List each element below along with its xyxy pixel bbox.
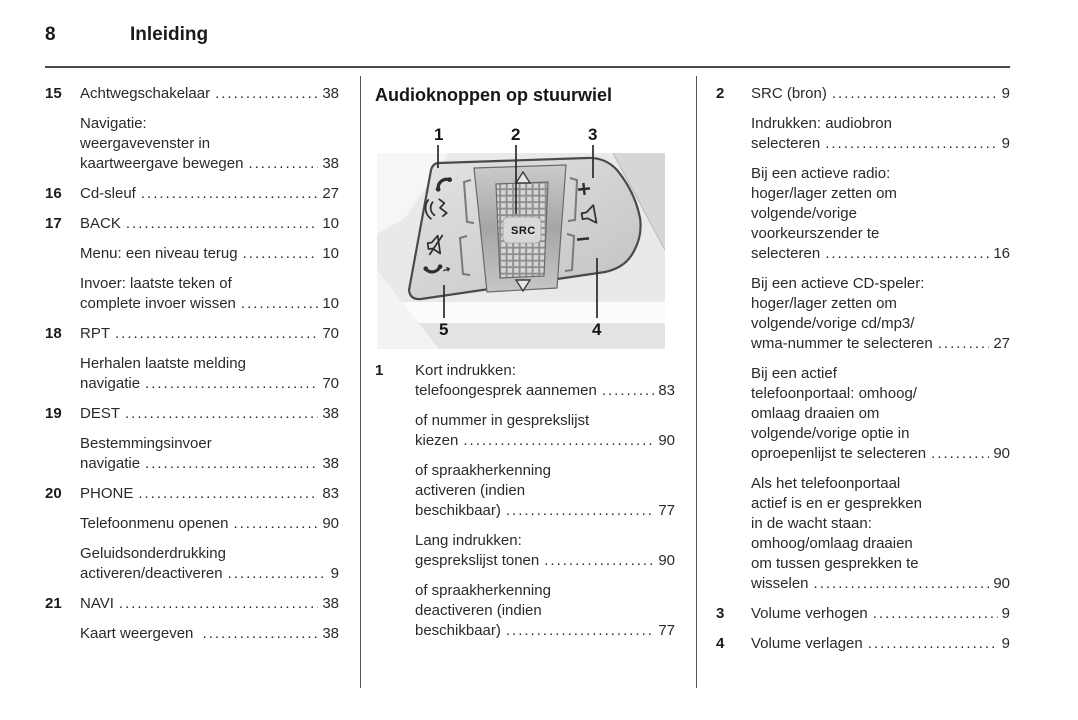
- toc-entry-lastline: SRC (bron)9: [751, 84, 1010, 104]
- dot-leader: [145, 374, 318, 394]
- toc-entry: Indrukken: audiobronselecteren9: [716, 114, 1010, 154]
- toc-entry-lastline: selecteren9: [751, 134, 1010, 154]
- toc-entry-line: PHONE: [80, 484, 133, 504]
- dot-leader: [506, 621, 654, 641]
- toc-entry-lastline: Cd-sleuf27: [80, 184, 339, 204]
- toc-entry-page: 10: [322, 214, 339, 234]
- toc-entry-text: DEST38: [80, 404, 339, 424]
- toc-entry-line: om tussen gesprekken te: [751, 554, 1010, 574]
- toc-entry-line: wma-nummer te selecteren: [751, 334, 933, 354]
- toc-entry-lastline: activeren/deactiveren9: [80, 564, 339, 584]
- toc-entry-line: of nummer in gesprekslijst: [415, 411, 675, 431]
- toc-entry-text: Achtwegschakelaar38: [80, 84, 339, 104]
- dot-leader: [141, 184, 318, 204]
- toc-entry-page: 10: [322, 294, 339, 314]
- toc-entry-text: Volume verlagen9: [751, 634, 1010, 654]
- dot-leader: [544, 551, 654, 571]
- dot-leader: [241, 294, 318, 314]
- toc-entry-lastline: Menu: een niveau terug10: [80, 244, 339, 264]
- toc-entry: Menu: een niveau terug10: [45, 244, 339, 264]
- volume-minus-icon: [577, 238, 589, 239]
- toc-entry-line: weergavevenster in: [80, 134, 339, 154]
- toc-entry-line: Kaart weergeven: [80, 624, 198, 644]
- toc-entry-line: deactiveren (indien: [415, 601, 675, 621]
- toc-entry-line: Invoer: laatste teken of: [80, 274, 339, 294]
- section-title: Audioknoppen op stuurwiel: [375, 84, 675, 106]
- toc-entry-lastline: RPT70: [80, 324, 339, 344]
- toc-entry: 19DEST38: [45, 404, 339, 424]
- toc-entry-page: 27: [322, 184, 339, 204]
- dot-leader: [228, 564, 327, 584]
- toc-entry-number: [45, 114, 80, 174]
- toc-entry-page: 38: [322, 84, 339, 104]
- toc-entry-number: [716, 164, 751, 264]
- toc-entry-number: 19: [45, 404, 80, 424]
- toc-entry-number: [45, 514, 80, 534]
- toc-entries-left: 15Achtwegschakelaar38Navigatie:weergavev…: [45, 84, 339, 644]
- toc-entry-text: Indrukken: audiobronselecteren9: [751, 114, 1010, 154]
- toc-entry-number: [45, 544, 80, 584]
- toc-entry-number: [375, 581, 415, 641]
- toc-entry-line: Cd-sleuf: [80, 184, 136, 204]
- toc-entry-lastline: PHONE83: [80, 484, 339, 504]
- toc-entry-number: [45, 244, 80, 264]
- toc-entry: Herhalen laatste meldingnavigatie70: [45, 354, 339, 394]
- toc-entry-line: RPT: [80, 324, 110, 344]
- src-thumbwheel: SRC: [496, 182, 548, 278]
- toc-entry-page: 70: [322, 324, 339, 344]
- toc-entry-line: volgende/vorige: [751, 204, 1010, 224]
- dot-leader: [215, 84, 318, 104]
- toc-entry-lastline: wma-nummer te selecteren27: [751, 334, 1010, 354]
- toc-entry-lastline: gesprekslijst tonen90: [415, 551, 675, 571]
- column-divider-right: [696, 76, 697, 688]
- callout-number-3: 3: [588, 125, 597, 144]
- toc-entry-text: Bij een actieve radio:hoger/lager zetten…: [751, 164, 1010, 264]
- toc-entry-lastline: kiezen90: [415, 431, 675, 451]
- toc-entry: 4Volume verlagen9: [716, 634, 1010, 654]
- toc-entry-line: Bestemmingsinvoer: [80, 434, 339, 454]
- toc-entry-text: Navigatie:weergavevenster inkaartweergav…: [80, 114, 339, 174]
- toc-entry-number: [45, 434, 80, 474]
- toc-entry-page: 9: [1002, 634, 1010, 654]
- toc-entry-lastline: telefoongesprek aannemen83: [415, 381, 675, 401]
- toc-entry: 18RPT70: [45, 324, 339, 344]
- toc-entry-page: 9: [1002, 604, 1010, 624]
- toc-entry-text: of nummer in gesprekslijstkiezen90: [415, 411, 675, 451]
- callout-number-4: 4: [592, 320, 602, 339]
- toc-entry-line: Indrukken: audiobron: [751, 114, 1010, 134]
- toc-entry-text: Bij een actieftelefoonportaal: omhoog/om…: [751, 364, 1010, 464]
- toc-entry-line: in de wacht staan:: [751, 514, 1010, 534]
- toc-entry: 21NAVI38: [45, 594, 339, 614]
- toc-entry-text: of spraakherkenningactiveren (indienbesc…: [415, 461, 675, 521]
- src-wheel-label: SRC: [511, 225, 536, 237]
- toc-entry-line: kiezen: [415, 431, 458, 451]
- toc-entry-number: 15: [45, 84, 80, 104]
- toc-entry-text: Als het telefoonportaalactief is en er g…: [751, 474, 1010, 594]
- toc-entry-line: NAVI: [80, 594, 114, 614]
- toc-entry: 16Cd-sleuf27: [45, 184, 339, 204]
- callout-number-1: 1: [434, 125, 443, 144]
- dot-leader: [119, 594, 318, 614]
- toc-entry-line: gesprekslijst tonen: [415, 551, 539, 571]
- toc-entry-number: 3: [716, 604, 751, 624]
- toc-column-middle: Audioknoppen op stuurwiel: [375, 84, 675, 651]
- toc-entry-line: selecteren: [751, 244, 820, 264]
- toc-entry-page: 16: [993, 244, 1010, 264]
- dot-leader: [243, 244, 319, 264]
- toc-entry-line: Telefoonmenu openen: [80, 514, 228, 534]
- toc-entry-text: Invoer: laatste teken ofcomplete invoer …: [80, 274, 339, 314]
- toc-entry-line: of spraakherkenning: [415, 581, 675, 601]
- toc-entry-number: [716, 274, 751, 354]
- toc-entry-number: 1: [375, 361, 415, 401]
- toc-entry: 2SRC (bron)9: [716, 84, 1010, 104]
- toc-entry-text: Herhalen laatste meldingnavigatie70: [80, 354, 339, 394]
- toc-entry-line: Volume verhogen: [751, 604, 868, 624]
- toc-entry-lastline: Kaart weergeven 38: [80, 624, 339, 644]
- toc-entry-line: volgende/vorige optie in: [751, 424, 1010, 444]
- toc-entry: 15Achtwegschakelaar38: [45, 84, 339, 104]
- toc-entry: Telefoonmenu openen90: [45, 514, 339, 534]
- toc-entry: of spraakherkenningactiveren (indienbesc…: [375, 461, 675, 521]
- dot-leader: [602, 381, 655, 401]
- toc-entry-line: actief is en er gesprekken: [751, 494, 1010, 514]
- toc-entry-line: activeren (indien: [415, 481, 675, 501]
- dot-leader: [115, 324, 318, 344]
- toc-entry-text: NAVI38: [80, 594, 339, 614]
- dot-leader: [814, 574, 990, 594]
- toc-entry: 3Volume verhogen9: [716, 604, 1010, 624]
- toc-entry-line: SRC (bron): [751, 84, 827, 104]
- toc-entry-page: 70: [322, 374, 339, 394]
- toc-entry-page: 10: [322, 244, 339, 264]
- toc-entry-text: BACK10: [80, 214, 339, 234]
- toc-entry-line: Bij een actieve radio:: [751, 164, 1010, 184]
- toc-entry-page: 27: [993, 334, 1010, 354]
- dot-leader: [125, 404, 318, 424]
- toc-entry-page: 83: [322, 484, 339, 504]
- toc-entry-line: Lang indrukken:: [415, 531, 675, 551]
- toc-entry-page: 90: [658, 431, 675, 451]
- dot-leader: [825, 244, 989, 264]
- toc-entry-lastline: wisselen90: [751, 574, 1010, 594]
- toc-entry-line: wisselen: [751, 574, 809, 594]
- toc-entry-number: [375, 531, 415, 571]
- toc-entry-line: telefoongesprek aannemen: [415, 381, 597, 401]
- toc-entry: of spraakherkenningdeactiveren (indienbe…: [375, 581, 675, 641]
- dot-leader: [931, 444, 989, 464]
- toc-entry-page: 90: [322, 514, 339, 534]
- toc-entry: Geluidsonderdrukkingactiveren/deactivere…: [45, 544, 339, 584]
- page-number: 8: [45, 24, 56, 46]
- toc-entry: Bij een actieve radio:hoger/lager zetten…: [716, 164, 1010, 264]
- toc-entry-page: 9: [331, 564, 339, 584]
- toc-entry-lastline: navigatie38: [80, 454, 339, 474]
- toc-entry: Als het telefoonportaalactief is en er g…: [716, 474, 1010, 594]
- toc-entry-lastline: Volume verlagen9: [751, 634, 1010, 654]
- toc-entries-right: 2SRC (bron)9Indrukken: audiobronselecter…: [716, 84, 1010, 654]
- toc-entry-line: Bij een actieve CD-speler:: [751, 274, 1010, 294]
- header-rule: [45, 66, 1010, 68]
- dot-leader: [126, 214, 318, 234]
- toc-entry-line: Als het telefoonportaal: [751, 474, 1010, 494]
- toc-entry: Navigatie:weergavevenster inkaartweergav…: [45, 114, 339, 174]
- toc-entry-number: 21: [45, 594, 80, 614]
- toc-entry-number: [45, 274, 80, 314]
- toc-entry-number: [716, 114, 751, 154]
- toc-entry-line: activeren/deactiveren: [80, 564, 223, 584]
- manual-page: 8 Inleiding 15Achtwegschakelaar38Navigat…: [0, 0, 1078, 720]
- toc-entry-page: 90: [993, 574, 1010, 594]
- dot-leader: [873, 604, 998, 624]
- toc-entry-line: Kort indrukken:: [415, 361, 675, 381]
- toc-entry-line: omhoog/omlaag draaien: [751, 534, 1010, 554]
- toc-entry: Bestemmingsinvoernavigatie38: [45, 434, 339, 474]
- toc-entry-text: Lang indrukken:gesprekslijst tonen90: [415, 531, 675, 571]
- callout-number-5: 5: [439, 320, 448, 339]
- toc-entry: Kaart weergeven 38: [45, 624, 339, 644]
- toc-entry-lastline: Achtwegschakelaar38: [80, 84, 339, 104]
- toc-entries-middle: 1Kort indrukken:telefoongesprek aannemen…: [375, 361, 675, 641]
- dot-leader: [248, 154, 318, 174]
- toc-column-right: 2SRC (bron)9Indrukken: audiobronselecter…: [716, 84, 1010, 664]
- toc-entry-text: Bestemmingsinvoernavigatie38: [80, 434, 339, 474]
- toc-entry-line: Navigatie:: [80, 114, 339, 134]
- toc-entry: Bij een actieftelefoonportaal: omhoog/om…: [716, 364, 1010, 464]
- toc-entry-text: Cd-sleuf27: [80, 184, 339, 204]
- toc-entry-line: kaartweergave bewegen: [80, 154, 243, 174]
- column-divider-left: [360, 76, 361, 688]
- toc-entry-line: omlaag draaien om: [751, 404, 1010, 424]
- toc-entry-page: 77: [658, 621, 675, 641]
- toc-entry-number: 18: [45, 324, 80, 344]
- toc-entry-line: beschikbaar): [415, 501, 501, 521]
- toc-entry-page: 77: [658, 501, 675, 521]
- toc-entry-text: of spraakherkenningdeactiveren (indienbe…: [415, 581, 675, 641]
- toc-entry-line: Bij een actief: [751, 364, 1010, 384]
- toc-entry-lastline: Volume verhogen9: [751, 604, 1010, 624]
- toc-entry-page: 90: [993, 444, 1010, 464]
- toc-entry-page: 83: [658, 381, 675, 401]
- toc-entry-lastline: complete invoer wissen10: [80, 294, 339, 314]
- steering-wheel-audio-controls-figure: SRC: [377, 118, 665, 349]
- toc-entry-text: Bij een actieve CD-speler:hoger/lager ze…: [751, 274, 1010, 354]
- toc-entry-lastline: beschikbaar)77: [415, 501, 675, 521]
- toc-entry-number: [45, 354, 80, 394]
- toc-entry-text: Kort indrukken:telefoongesprek aannemen8…: [415, 361, 675, 401]
- toc-entry: 17BACK10: [45, 214, 339, 234]
- dot-leader: [463, 431, 654, 451]
- toc-entry-line: of spraakherkenning: [415, 461, 675, 481]
- toc-entry-number: 17: [45, 214, 80, 234]
- toc-entry-text: PHONE83: [80, 484, 339, 504]
- toc-entry-number: [375, 461, 415, 521]
- toc-entry-page: 9: [1002, 84, 1010, 104]
- toc-entry-text: Geluidsonderdrukkingactiveren/deactivere…: [80, 544, 339, 584]
- toc-entry-line: DEST: [80, 404, 120, 424]
- page-title: Inleiding: [130, 24, 208, 46]
- toc-entry-lastline: DEST38: [80, 404, 339, 424]
- toc-entry-line: Menu: een niveau terug: [80, 244, 238, 264]
- toc-entry: Bij een actieve CD-speler:hoger/lager ze…: [716, 274, 1010, 354]
- toc-entry-text: Volume verhogen9: [751, 604, 1010, 624]
- toc-entry: Lang indrukken:gesprekslijst tonen90: [375, 531, 675, 571]
- toc-entry-line: Herhalen laatste melding: [80, 354, 339, 374]
- toc-entry-text: RPT70: [80, 324, 339, 344]
- toc-entry-lastline: navigatie70: [80, 374, 339, 394]
- dot-leader: [825, 134, 997, 154]
- toc-entry-text: Menu: een niveau terug10: [80, 244, 339, 264]
- callout-number-2: 2: [511, 125, 520, 144]
- dot-leader: [938, 334, 990, 354]
- toc-entry-line: hoger/lager zetten om: [751, 184, 1010, 204]
- toc-entry-page: 38: [322, 154, 339, 174]
- toc-entry-line: navigatie: [80, 374, 140, 394]
- toc-entry-page: 9: [1002, 134, 1010, 154]
- toc-entry-number: 2: [716, 84, 751, 104]
- toc-entry-lastline: beschikbaar)77: [415, 621, 675, 641]
- dot-leader: [145, 454, 318, 474]
- toc-entry-line: volgende/vorige cd/mp3/: [751, 314, 1010, 334]
- toc-entry-lastline: Telefoonmenu openen90: [80, 514, 339, 534]
- dot-leader: [138, 484, 318, 504]
- toc-entry-line: Geluidsonderdrukking: [80, 544, 339, 564]
- dot-leader: [868, 634, 998, 654]
- dot-leader: [506, 501, 654, 521]
- toc-entry-line: oproepenlijst te selecteren: [751, 444, 926, 464]
- toc-entry-line: navigatie: [80, 454, 140, 474]
- toc-entry-lastline: kaartweergave bewegen38: [80, 154, 339, 174]
- toc-entry-line: beschikbaar): [415, 621, 501, 641]
- toc-entry-number: [716, 364, 751, 464]
- toc-column-left: 15Achtwegschakelaar38Navigatie:weergavev…: [45, 84, 339, 654]
- toc-entry-text: Kaart weergeven 38: [80, 624, 339, 644]
- toc-entry-number: [375, 411, 415, 451]
- toc-entry-line: Achtwegschakelaar: [80, 84, 210, 104]
- toc-entry-lastline: oproepenlijst te selecteren90: [751, 444, 1010, 464]
- toc-entry-line: BACK: [80, 214, 121, 234]
- toc-entry-line: complete invoer wissen: [80, 294, 236, 314]
- toc-entry-lastline: BACK10: [80, 214, 339, 234]
- toc-entry-line: selecteren: [751, 134, 820, 154]
- toc-entry-page: 90: [658, 551, 675, 571]
- figure-svg: SRC: [377, 118, 665, 349]
- toc-entry-number: [716, 474, 751, 594]
- toc-entry-line: voorkeurszender te: [751, 224, 1010, 244]
- toc-entry-text: SRC (bron)9: [751, 84, 1010, 104]
- toc-entry-page: 38: [322, 624, 339, 644]
- toc-entry-page: 38: [322, 404, 339, 424]
- toc-entry-text: Telefoonmenu openen90: [80, 514, 339, 534]
- toc-entry: 20PHONE83: [45, 484, 339, 504]
- toc-entry-number: 16: [45, 184, 80, 204]
- toc-entry-lastline: NAVI38: [80, 594, 339, 614]
- dot-leader: [832, 84, 998, 104]
- toc-entry-number: 4: [716, 634, 751, 654]
- toc-entry-lastline: selecteren16: [751, 244, 1010, 264]
- toc-entry-line: Volume verlagen: [751, 634, 863, 654]
- toc-entry-number: [45, 624, 80, 644]
- toc-entry-page: 38: [322, 594, 339, 614]
- toc-entry-page: 38: [322, 454, 339, 474]
- toc-entry: Invoer: laatste teken ofcomplete invoer …: [45, 274, 339, 314]
- dot-leader: [203, 624, 319, 644]
- toc-entry-number: 20: [45, 484, 80, 504]
- dot-leader: [233, 514, 318, 534]
- toc-entry-line: hoger/lager zetten om: [751, 294, 1010, 314]
- toc-entry: of nummer in gesprekslijstkiezen90: [375, 411, 675, 451]
- toc-entry: 1Kort indrukken:telefoongesprek aannemen…: [375, 361, 675, 401]
- toc-entry-line: telefoonportaal: omhoog/: [751, 384, 1010, 404]
